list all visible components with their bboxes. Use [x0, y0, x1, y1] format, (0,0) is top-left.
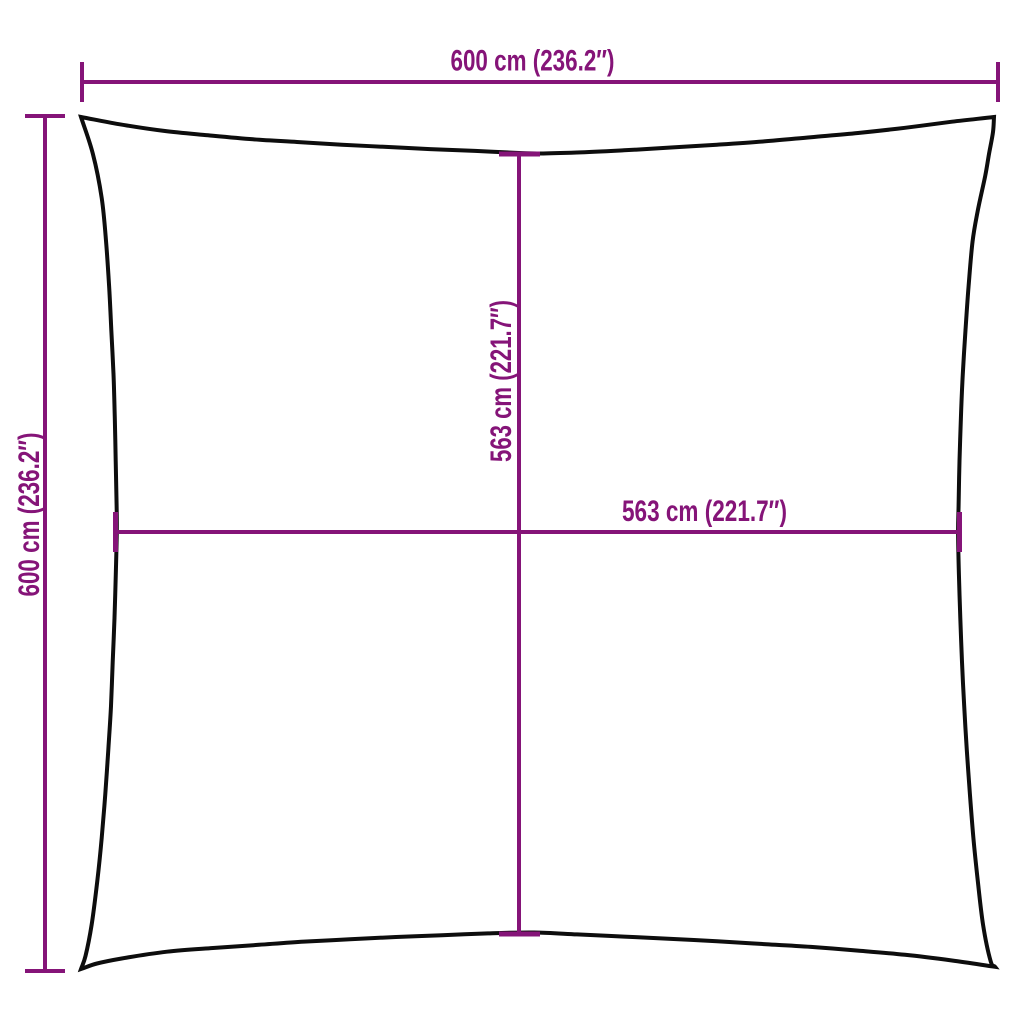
svg-text:600 cm (236.2″): 600 cm (236.2″) [451, 45, 615, 78]
svg-text:563 cm (221.7″): 563 cm (221.7″) [622, 495, 787, 528]
svg-text:563 cm (221.7″): 563 cm (221.7″) [485, 300, 518, 462]
svg-text:600 cm (236.2″): 600 cm (236.2″) [13, 433, 46, 597]
